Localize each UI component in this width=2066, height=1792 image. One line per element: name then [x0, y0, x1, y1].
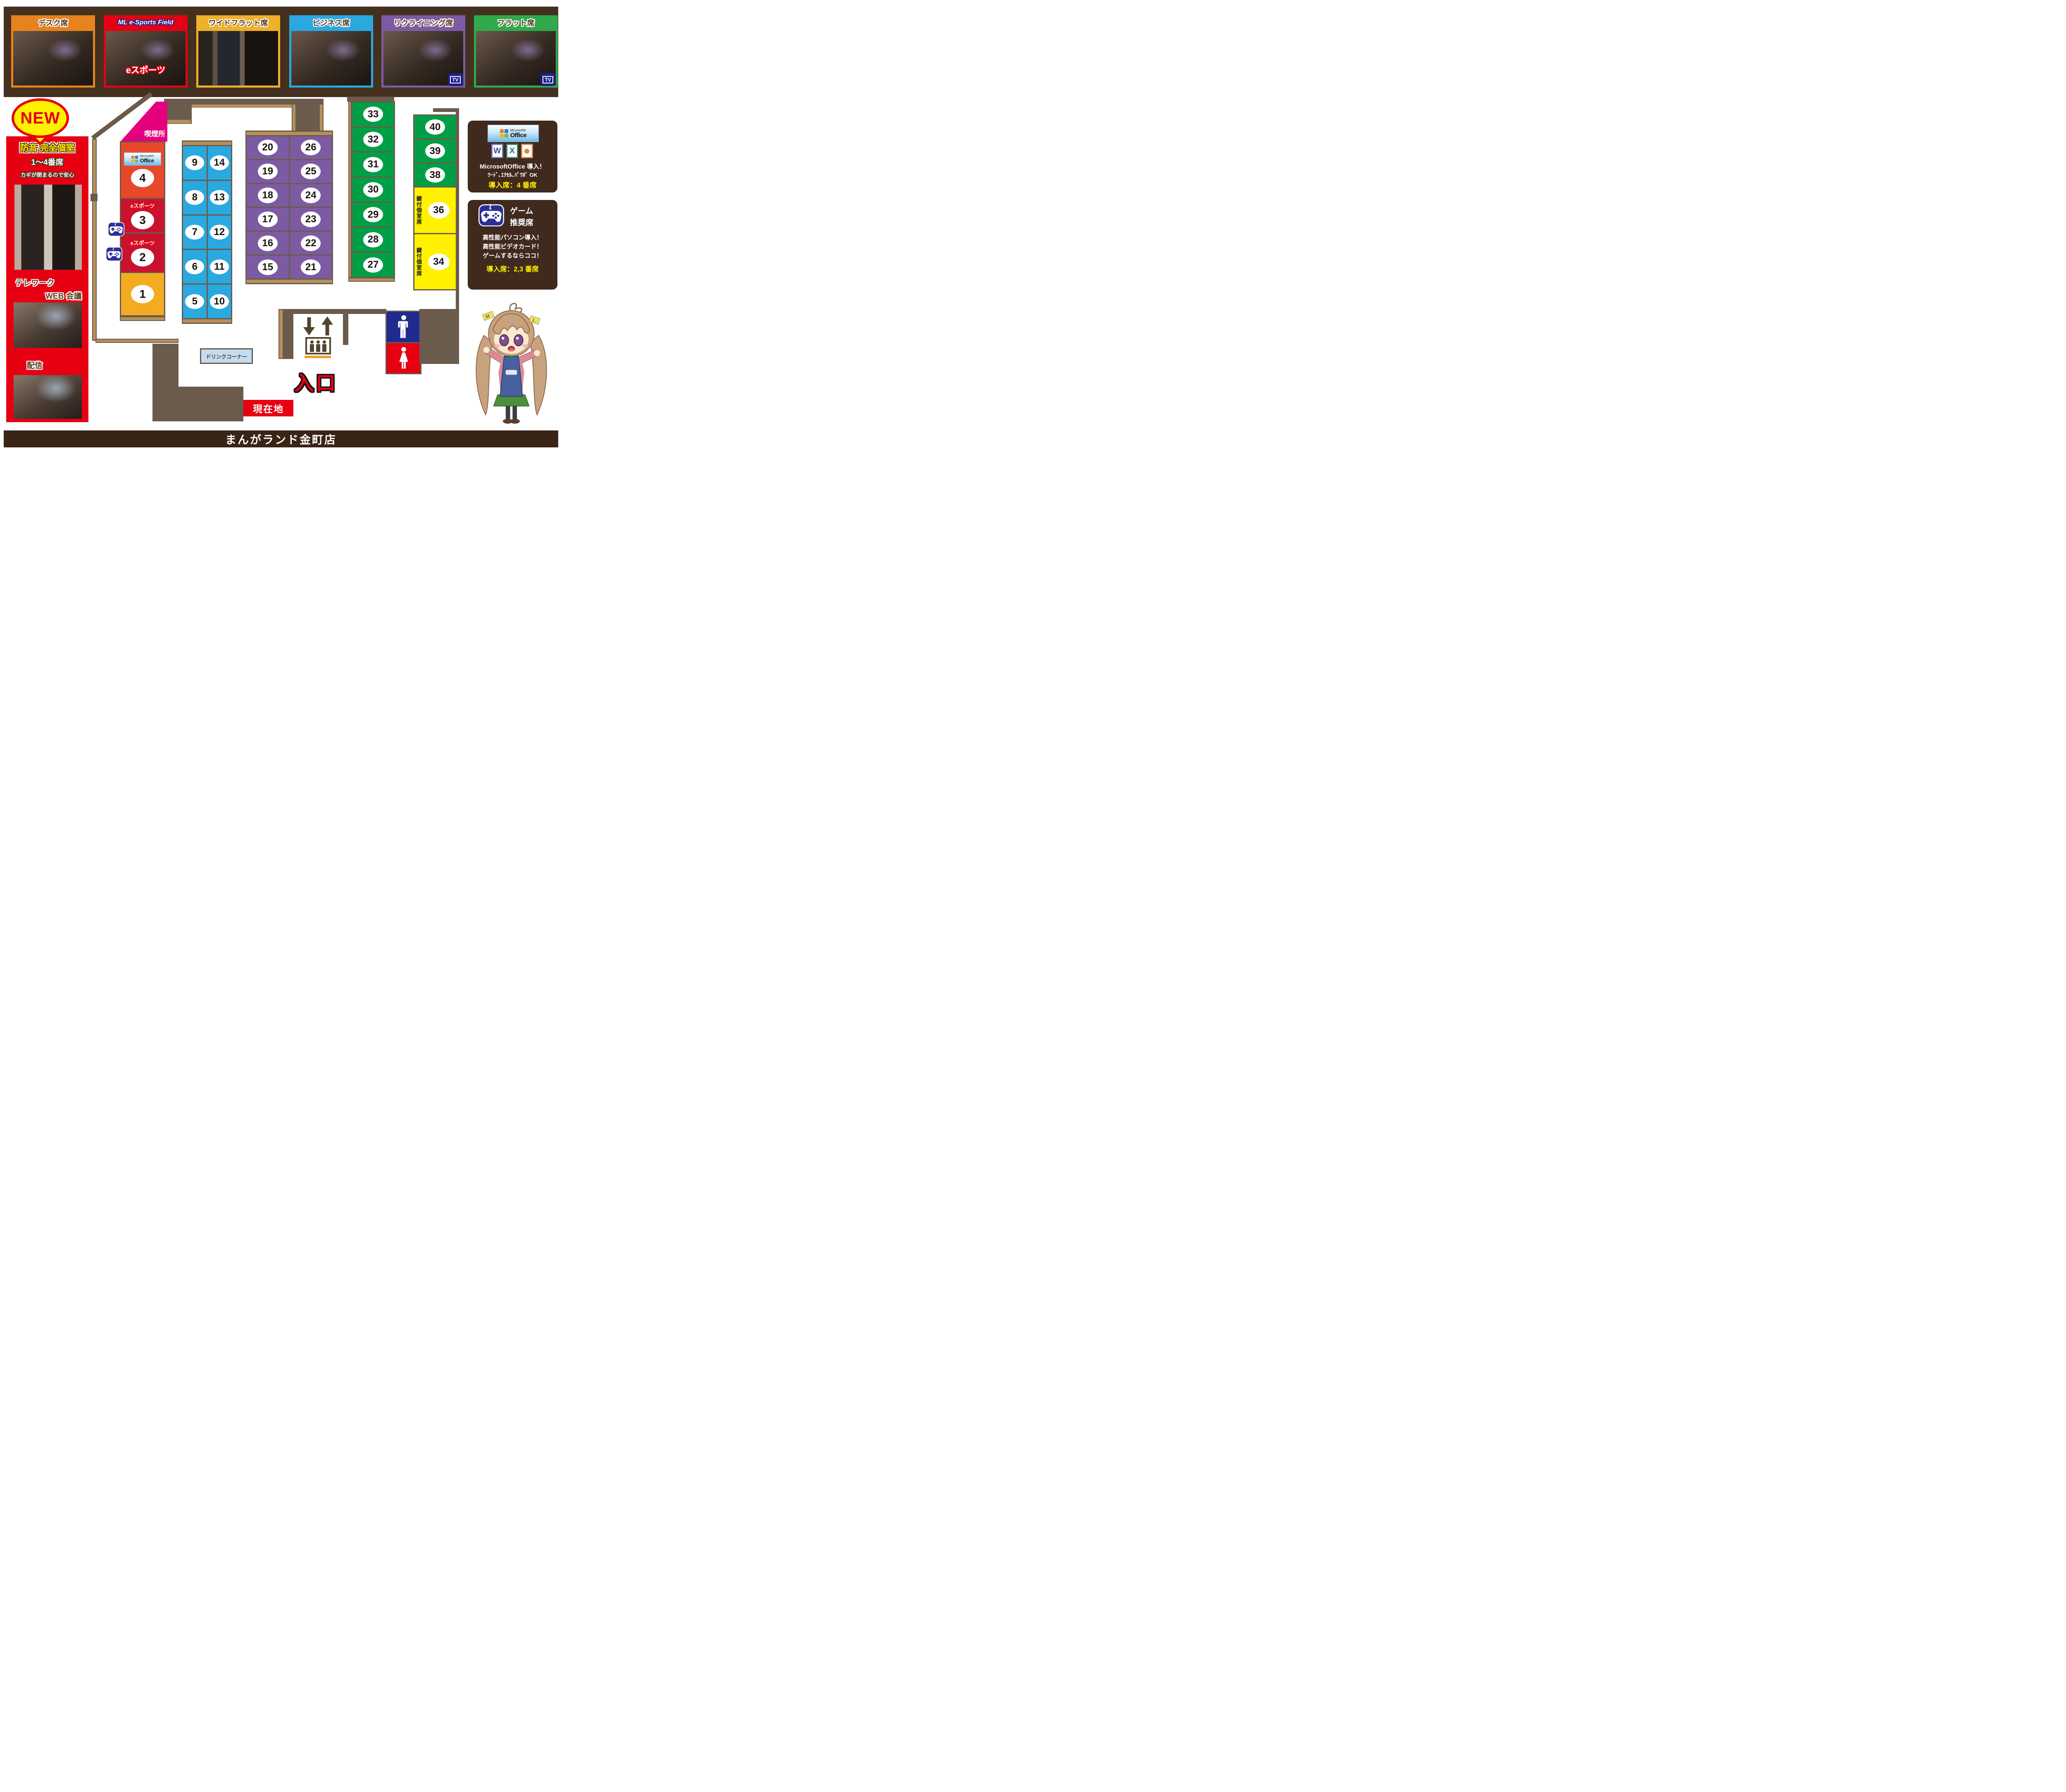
telework-photo [14, 302, 82, 348]
female-icon [396, 346, 411, 370]
seat-17: 17 [247, 208, 289, 231]
seat-type-panel: ビジネス席 [289, 15, 373, 88]
wall-tan-accent-1 [165, 120, 190, 124]
office-line2: ﾜｰﾄﾞ､ｴｸｾﾙ､ﾊﾟﾜﾎﾟ OK [468, 171, 557, 178]
seat-9: 9 [183, 146, 207, 180]
lock-note: カギが閉まるので安心 [6, 171, 88, 178]
telework-caption: テレワーク [15, 277, 55, 288]
tv-label: TV [543, 76, 553, 83]
floor-map-poster: デスク席ML e-Sports Fieldeスポーツワイドフラット席ビジネス席リ… [0, 0, 558, 448]
blue-seat-block: 987651413121110 [182, 140, 232, 324]
seat-number: 15 [258, 259, 278, 275]
seat-7: 7 [183, 216, 207, 249]
wall-top-right-leg [292, 99, 324, 133]
seat-type-label: ML e-Sports Field [104, 15, 188, 30]
word-icon: W [491, 144, 503, 158]
wall-block-bottom-h [152, 387, 243, 421]
seat-number: 25 [301, 164, 321, 179]
drink-corner: ドリンクコーナー [200, 348, 253, 364]
wall-tan-accent-3 [293, 105, 295, 132]
seat-number: 7 [185, 225, 204, 240]
seat-24: 24 [290, 184, 332, 207]
seat-number: 6 [185, 259, 204, 274]
wall-elevator-left [283, 309, 293, 359]
seat-33: 33 [352, 102, 394, 126]
tv-label: TV [450, 76, 460, 83]
private-seat-column: Microsoft®Office4eスポーツ3eスポーツ21 [120, 141, 165, 316]
store-title-bar: まんがランド金町店 [4, 430, 558, 447]
seat-type-label: ビジネス席 [289, 15, 373, 30]
male-icon [397, 315, 411, 339]
keyed-room-label: 鍵付個室席 [416, 247, 421, 276]
tv-icon: TV [448, 73, 463, 86]
wall-tan-accent-2 [192, 105, 292, 108]
game-line2: 高性能ビデオカード！ [468, 242, 557, 251]
esports-overlay-label: eスポーツ [104, 64, 188, 76]
wall-elevator-right [343, 314, 348, 345]
seat-type-panel: ワイドフラット席 [196, 15, 280, 88]
seat-type-photo [198, 31, 278, 86]
seat-type-panel: フラット席TV [474, 15, 558, 88]
wall-elevator-left-tan [278, 309, 283, 359]
seat-number: 26 [301, 140, 321, 155]
office-puzzle-icon [500, 129, 508, 138]
seat-14: 14 [208, 146, 231, 180]
seat-number: 32 [363, 132, 383, 147]
wall-under-green [348, 278, 395, 282]
seat-13: 13 [208, 181, 231, 214]
seat-16: 16 [247, 232, 289, 254]
gamepad-icon [106, 246, 122, 261]
seat-number: 12 [210, 225, 229, 240]
streaming-caption: 配信 [27, 359, 43, 371]
store-title: まんがランド金町店 [225, 431, 337, 447]
seat-20: 20 [247, 136, 289, 159]
seat-type-label: ワイドフラット席 [196, 15, 280, 30]
private-room-photo [14, 185, 82, 270]
seat-type-photo [13, 31, 93, 86]
seat-number: 20 [258, 140, 278, 155]
seat-number: 29 [363, 207, 383, 222]
seat-type-panel: リクライニング席TV [381, 15, 465, 88]
seat-number: 30 [363, 182, 383, 197]
soundproof-title: 防音 完全個室 [6, 141, 88, 154]
seat-number: 17 [258, 212, 278, 227]
seat-18: 18 [247, 184, 289, 207]
seat-22: 22 [290, 232, 332, 254]
seat-type-label: デスク席 [11, 15, 95, 30]
seat-38: 38 [414, 164, 456, 186]
wall-left-jog [90, 194, 98, 201]
wall-elevator-top [283, 309, 386, 314]
seat-36: 鍵付個室席36 [414, 188, 456, 233]
current-location-badge: 現在地 [243, 400, 293, 416]
office-app-icons: W X [491, 144, 533, 158]
game-line3: ゲームするならココ！ [468, 251, 557, 260]
gamepad-icon [108, 221, 124, 236]
green-seat-column: 33323130292827 [351, 101, 395, 278]
wall-block-right [419, 309, 459, 364]
office-logo-small: Microsoft®Office [124, 152, 161, 166]
seat-number: 27 [363, 257, 383, 273]
seat-number: 40 [425, 119, 445, 135]
seat-number: 14 [210, 155, 229, 170]
streaming-photo [14, 375, 82, 419]
private-room-panel: 防音 完全個室 1～4番席 カギが閉まるので安心 テレワーク WEB 会議 配信 [6, 136, 88, 422]
seat-type-label: フラット席 [474, 15, 558, 30]
seat-23: 23 [290, 208, 332, 231]
mascot: M L [467, 295, 556, 432]
seat-number: 3 [131, 211, 154, 229]
womens-restroom [387, 343, 420, 373]
office-seats-line: 導入席：4 番席 [468, 179, 557, 190]
gamepad-icon [478, 203, 504, 226]
wall-tan-edge [183, 142, 231, 145]
seat-number: 19 [258, 164, 278, 179]
seat-40: 40 [414, 116, 456, 138]
seat-1: 1 [121, 273, 164, 315]
seat-31: 31 [352, 152, 394, 176]
seat-number: 16 [258, 235, 278, 251]
seat-number: 34 [428, 254, 450, 270]
seat-number: 33 [363, 107, 383, 122]
seat-21: 21 [290, 256, 332, 278]
wall-left [92, 139, 97, 341]
wall-tan-edge [246, 132, 332, 135]
wall-tan-edge [183, 319, 231, 323]
powerpoint-icon [521, 144, 533, 158]
seat-number: 39 [425, 143, 445, 159]
elevator-icon [293, 314, 343, 355]
seat-number: 18 [258, 188, 278, 203]
wall-top-right-corner [433, 108, 458, 112]
seat-number: 11 [210, 259, 229, 274]
seat-type-photo [291, 31, 371, 86]
seat-number: 1 [131, 285, 154, 303]
wall-bottom-left [95, 339, 179, 343]
seat-number: 36 [428, 202, 450, 219]
elevator-bay [293, 314, 343, 359]
keyed-room-label: 鍵付個室席 [416, 196, 421, 225]
new-badge: NEW [12, 98, 69, 138]
seat-type-label: リクライニング席 [381, 15, 465, 30]
seat-number: 24 [301, 188, 321, 203]
seat-number: 2 [131, 248, 154, 266]
seat-10: 10 [208, 285, 231, 318]
seat-15: 15 [247, 256, 289, 278]
seat-number: 22 [301, 235, 321, 251]
smoking-area-label: 喫煙所 [144, 128, 165, 138]
seat-11: 11 [208, 250, 231, 283]
esports-seat-label: eスポーツ [131, 202, 155, 209]
wall-tan-accent-4 [320, 105, 323, 132]
seat-28: 28 [352, 228, 394, 252]
wall-tan-edge [246, 280, 332, 283]
seat-number: 4 [131, 169, 154, 187]
smoking-area: 喫煙所 [120, 102, 167, 142]
seat-range-label: 1～4番席 [6, 156, 88, 167]
seat-number: 9 [185, 155, 204, 170]
game-seats-line: 導入席：2,3 番席 [468, 264, 557, 273]
restrooms [386, 311, 421, 374]
seat-type-photo [106, 31, 186, 86]
seat-12: 12 [208, 216, 231, 249]
seat-39: 39 [414, 140, 456, 162]
tv-icon: TV [540, 73, 555, 86]
microsoft-office-logo: Microsoft®Office [488, 125, 539, 142]
seat-5: 5 [183, 285, 207, 318]
seat-number: 10 [210, 294, 229, 309]
office-line1: MicrosoftOffice 導入！ [468, 162, 557, 171]
seat-19: 19 [247, 160, 289, 183]
game-info-panel: ゲーム 推奨席 高性能パソコン導入！ 高性能ビデオカード！ ゲームするならココ！… [468, 200, 557, 290]
seat-number: 23 [301, 212, 321, 227]
seat-25: 25 [290, 160, 332, 183]
seat-34: 鍵付個室席34 [414, 234, 456, 289]
seat-6: 6 [183, 250, 207, 283]
right-seat-column: 403938鍵付個室席36鍵付個室席34 [413, 114, 457, 290]
elevator-door-strip [305, 356, 331, 358]
seat-30: 30 [352, 178, 394, 202]
game-line1: 高性能パソコン導入！ [468, 233, 557, 242]
seat-2: eスポーツ2 [121, 233, 164, 272]
seat-29: 29 [352, 203, 394, 227]
seat-number: 21 [301, 259, 321, 275]
seat-type-panel: デスク席 [11, 15, 95, 88]
seat-number: 13 [210, 190, 229, 205]
esports-seat-label: eスポーツ [131, 239, 155, 247]
seat-4: Microsoft®Office4 [121, 143, 164, 198]
wall-under-private [120, 316, 165, 321]
seat-number: 28 [363, 232, 383, 247]
office-logo-product: Office [510, 132, 527, 138]
seat-number: 5 [185, 294, 204, 309]
entrance-label: 入口 [283, 367, 349, 396]
office-info-panel: Microsoft®Office W X MicrosoftOffice 導入！… [468, 121, 557, 193]
seat-number: 8 [185, 190, 204, 205]
web-meeting-caption: WEB 会議 [45, 290, 82, 301]
seat-32: 32 [352, 128, 394, 152]
seat-type-panel: ML e-Sports Fieldeスポーツ [104, 15, 188, 88]
purple-seat-block: 201918171615262524232221 [245, 131, 333, 284]
mens-restroom [387, 312, 420, 342]
seat-type-panels-strip: デスク席ML e-Sports Fieldeスポーツワイドフラット席ビジネス席リ… [4, 7, 558, 97]
excel-icon: X [506, 144, 518, 158]
seat-number: 38 [425, 167, 445, 183]
seat-number: 31 [363, 157, 383, 172]
seat-8: 8 [183, 181, 207, 214]
seat-26: 26 [290, 136, 332, 159]
seat-27: 27 [352, 253, 394, 277]
seat-3: eスポーツ3 [121, 199, 164, 232]
game-title1: ゲーム [510, 205, 533, 216]
game-title2: 推奨席 [510, 216, 533, 228]
